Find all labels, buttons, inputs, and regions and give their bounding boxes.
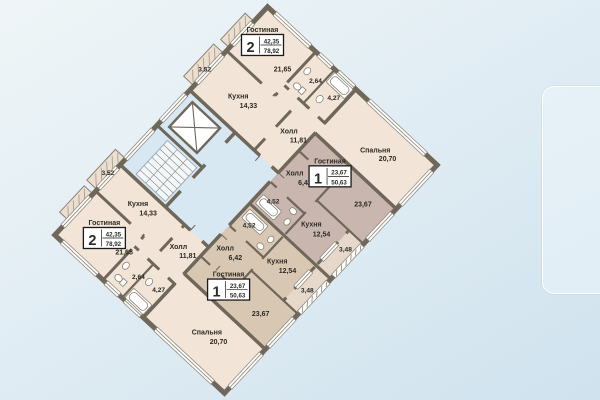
apartment-room-label: Гостиная [89,220,121,227]
apartment-total-area: 78,92 [264,48,280,55]
label-hall-name: Холл [280,128,298,135]
label-bedroom-area: 20,70 [210,339,228,346]
apartment-living-area: 23,67 [331,170,347,177]
label-kitchen-name: Кухня [128,201,148,208]
label-living-area: 21,65 [115,249,133,256]
label-balcony-area: 3,52 [198,66,211,73]
apartment-info-box-1room-right: Гостиная 1 23,67 50,63 [309,158,351,187]
apartment-rooms-count: 1 [314,171,322,187]
label-kitchen-name: Кухня [228,93,248,100]
label-wc-area: 2,64 [132,274,145,281]
label-bath-area: 4,52 [267,198,280,205]
label-hall-name: Холл [170,244,188,251]
label-hall-name: Холл [286,171,304,178]
apartment-total-area: 78,92 [106,241,122,248]
apartment-room-label: Гостиная [213,272,245,279]
label-wc-area: 2,64 [309,78,322,85]
page-background: Кухня 14,33 21,65 3,52 2,64 4,27 Холл 11… [0,0,600,400]
label-living-area: 23,67 [252,311,270,318]
label-hall-area: 6,42 [229,255,243,262]
apartment-room-label: Гостиная [314,158,346,165]
label-bath-area: 4,27 [152,287,165,294]
apartment-total-area: 50,63 [230,293,246,300]
apartment-info-box-1room-left: Гостиная 1 23,67 50,63 [208,272,250,301]
label-kitchen-area: 14,33 [139,210,157,217]
apartment-rooms-count: 1 [213,285,221,301]
apartment-room-label: Гостиная [247,27,279,34]
apartment-rooms-count: 2 [246,40,254,56]
label-balcony-area: 3,48 [301,288,314,295]
apartment-rooms-count: 2 [88,233,96,249]
label-living-area: 21,65 [274,66,292,73]
apartment-info-box-2room-bottom: Гостиная 2 42,35 78,92 [83,220,125,249]
label-kitchen-area: 12,54 [279,268,297,275]
apartment-total-area: 50,63 [331,179,347,186]
label-bedroom-area: 20,70 [379,156,397,163]
label-bath-area: 4,27 [327,95,340,102]
apartment-info-box-2room-top: Гостиная 2 42,35 78,92 [242,27,284,56]
label-hall-name: Холл [216,245,234,252]
label-bath-area: 4,52 [243,222,256,229]
label-balcony-area: 3,52 [101,170,114,177]
label-bedroom-name: Спальня [360,147,390,154]
label-kitchen-area: 12,54 [313,231,331,238]
apartment-living-area: 23,67 [230,283,246,290]
label-hall-area: 11,81 [290,137,307,144]
floor-plan: Кухня 14,33 21,65 3,52 2,64 4,27 Холл 11… [0,0,600,400]
label-hall-area: 11,81 [179,253,196,260]
label-kitchen-name: Кухня [301,222,321,229]
label-balcony-area: 3,48 [339,247,352,254]
label-bedroom-name: Спальня [192,329,222,336]
apartment-living-area: 42,35 [106,231,122,238]
label-kitchen-area: 14,33 [240,103,258,110]
label-living-area: 23,67 [354,202,372,209]
apartment-living-area: 42,35 [264,38,280,45]
apartment-areas [55,7,437,393]
label-kitchen-name: Кухня [267,258,287,265]
